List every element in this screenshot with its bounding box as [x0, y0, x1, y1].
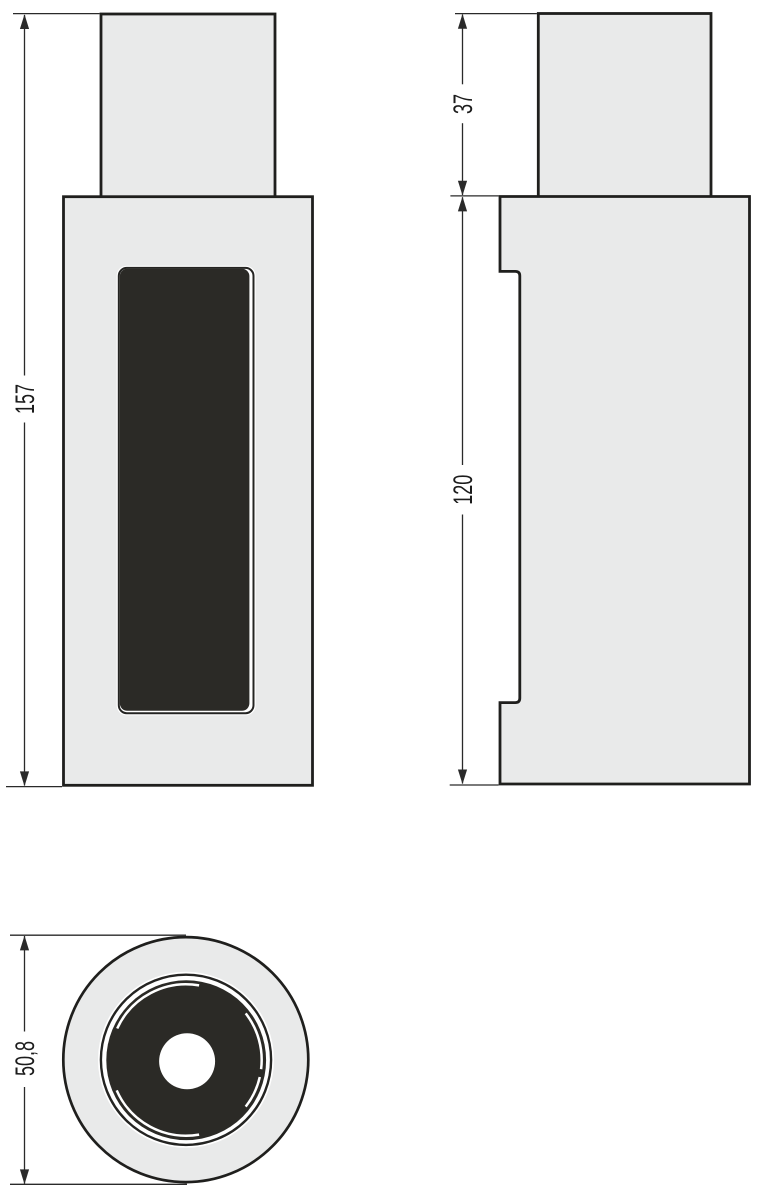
- svg-text:157: 157: [9, 384, 39, 414]
- svg-text:37: 37: [447, 94, 477, 114]
- svg-text:50,8: 50,8: [9, 1041, 39, 1076]
- svg-text:120: 120: [447, 475, 477, 505]
